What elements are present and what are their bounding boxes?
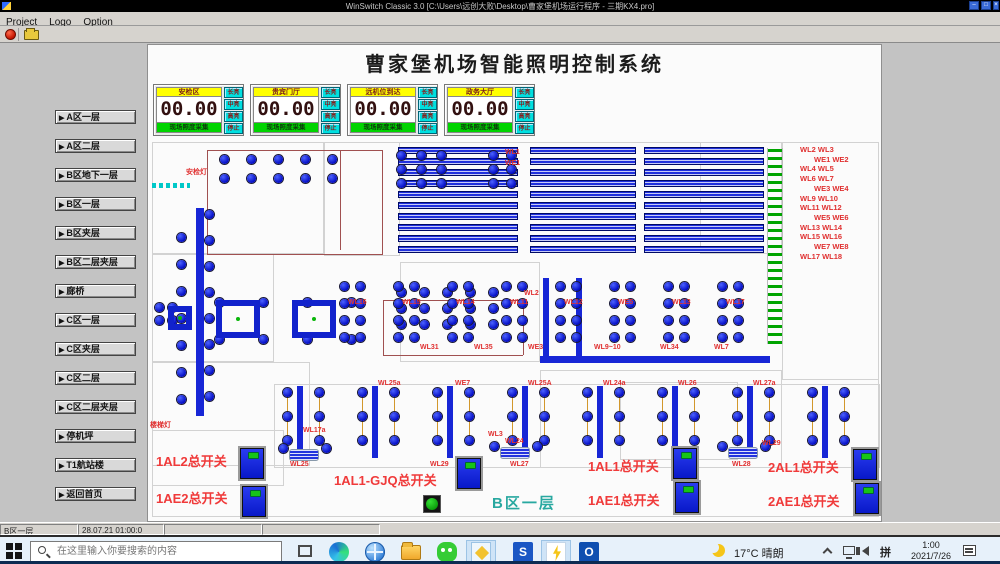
sidebar-button-3[interactable]: ▶B区一层 — [55, 197, 136, 211]
plan-wall — [274, 384, 880, 468]
clock-date: 2021/7/26 — [905, 551, 957, 562]
panel-mode-button-3[interactable]: 停止 — [418, 123, 437, 134]
light-dot[interactable] — [533, 442, 542, 451]
light-dot[interactable] — [358, 388, 367, 397]
light-dot[interactable] — [420, 304, 429, 313]
clock[interactable]: 1:00 2021/7/26 — [905, 540, 957, 562]
light-dot[interactable] — [394, 333, 403, 342]
light-dot[interactable] — [518, 333, 527, 342]
light-dot[interactable] — [177, 260, 186, 269]
arrow-icon: ▶ — [59, 318, 64, 325]
sidebar-button-6[interactable]: ▶廊桥 — [55, 284, 136, 298]
light-dot[interactable] — [489, 179, 498, 188]
light-bar[interactable] — [398, 213, 518, 220]
light-dot[interactable] — [390, 412, 399, 421]
light-dot[interactable] — [433, 388, 442, 397]
panel-mode-button-2[interactable]: 高亮 — [224, 111, 243, 122]
light-dot[interactable] — [664, 316, 673, 325]
light-dot[interactable] — [397, 151, 406, 160]
light-bar[interactable] — [530, 191, 636, 198]
plan-conduit-line — [523, 300, 524, 355]
light-bar[interactable] — [543, 278, 549, 360]
light-bar[interactable] — [372, 386, 378, 458]
sidebar-button-12[interactable]: ▶T1航站楼 — [55, 458, 136, 472]
light-bar[interactable] — [530, 246, 636, 253]
light-dot[interactable] — [658, 412, 667, 421]
light-bar[interactable] — [398, 169, 518, 176]
light-bar[interactable] — [540, 356, 770, 363]
light-dot[interactable] — [315, 412, 324, 421]
light-dot[interactable] — [680, 333, 689, 342]
light-dot[interactable] — [315, 436, 324, 445]
light-bar[interactable] — [530, 213, 636, 220]
light-dot[interactable] — [340, 316, 349, 325]
circuit-list: WL2 WL3WE1 WE2WL4 WL5WL6 WL7WE3 WE4WL9 W… — [800, 145, 849, 261]
light-dot[interactable] — [390, 388, 399, 397]
master-switch-button-2[interactable] — [457, 458, 481, 489]
light-dot[interactable] — [433, 412, 442, 421]
panel-mode-button-0[interactable]: 长亮 — [418, 87, 437, 98]
panel-mode-button-3[interactable]: 停止 — [515, 123, 534, 134]
light-dot[interactable] — [610, 333, 619, 342]
light-dot[interactable] — [177, 395, 186, 404]
circuit-label: WL16 — [348, 299, 367, 306]
light-dot[interactable] — [583, 436, 592, 445]
light-bar[interactable] — [644, 213, 764, 220]
light-dot[interactable] — [301, 174, 310, 183]
light-dot[interactable] — [765, 388, 774, 397]
light-bar[interactable] — [530, 169, 636, 176]
master-switch-button-1[interactable] — [242, 486, 266, 517]
light-dot[interactable] — [328, 155, 337, 164]
light-dot[interactable] — [340, 333, 349, 342]
light-dot[interactable] — [680, 316, 689, 325]
light-dot[interactable] — [518, 316, 527, 325]
circuit-label: WL14 — [456, 299, 475, 306]
light-dot[interactable] — [417, 179, 426, 188]
panel-mode-button-1[interactable]: 中亮 — [418, 99, 437, 110]
light-dot[interactable] — [465, 436, 474, 445]
circuit-label: WL26 — [678, 380, 697, 387]
close-button[interactable]: × — [993, 1, 999, 10]
circuit-list-line: WE7 WE8 — [814, 242, 849, 252]
light-dot[interactable] — [502, 316, 511, 325]
light-bar[interactable] — [530, 202, 636, 209]
light-dot[interactable] — [489, 288, 498, 297]
circuit-label: WL27 — [510, 461, 529, 468]
light-fixture[interactable] — [500, 447, 530, 459]
light-bar[interactable] — [398, 246, 518, 253]
light-dot[interactable] — [610, 282, 619, 291]
tray-chevron-up-icon[interactable] — [823, 548, 833, 558]
panel-mode-button-3[interactable]: 停止 — [224, 123, 243, 134]
light-dot[interactable] — [489, 304, 498, 313]
wechat-taskbar-button[interactable] — [432, 540, 462, 564]
panel-footer-label: 现场照度采集 — [156, 123, 222, 133]
light-dot[interactable] — [615, 388, 624, 397]
outlook-taskbar-button[interactable]: O — [574, 540, 604, 564]
panel-zone-title: 政务大厅 — [447, 87, 513, 97]
light-dot[interactable] — [437, 165, 446, 174]
light-dot[interactable] — [840, 436, 849, 445]
light-dot[interactable] — [205, 392, 214, 401]
light-dot[interactable] — [247, 174, 256, 183]
master-switch-button-3[interactable] — [673, 448, 697, 479]
ime-indicator[interactable]: 拼 — [880, 544, 891, 560]
key-app-taskbar-button[interactable] — [466, 540, 496, 564]
light-bar[interactable] — [644, 180, 764, 187]
light-dot[interactable] — [615, 436, 624, 445]
light-bar[interactable] — [398, 158, 518, 165]
circuit-list-line: WE5 WE6 — [814, 213, 849, 223]
area-label: B区一层 — [492, 492, 556, 513]
stop-tool-icon[interactable] — [5, 29, 16, 40]
light-dot[interactable] — [448, 316, 457, 325]
light-bar[interactable] — [597, 386, 603, 458]
menu-bar: ProjectLogoOption — [0, 12, 1000, 26]
circuit-list-line: WL13 WL14 — [800, 223, 849, 233]
room-light-block[interactable] — [168, 306, 192, 330]
taskbar-search[interactable] — [30, 541, 282, 562]
master-switch-label: 1AE1总开关 — [588, 490, 660, 509]
light-dot[interactable] — [448, 333, 457, 342]
circuit-label: WL24 — [505, 438, 524, 445]
light-bar[interactable] — [644, 246, 764, 253]
light-dot[interactable] — [390, 436, 399, 445]
light-dot[interactable] — [394, 282, 403, 291]
light-dot[interactable] — [556, 282, 565, 291]
light-bar[interactable] — [398, 202, 518, 209]
light-dot[interactable] — [410, 316, 419, 325]
sidebar-button-label: C区二层夹层 — [66, 402, 118, 412]
edge-taskbar-button[interactable] — [324, 540, 354, 564]
sidebar-button-label: C区夹层 — [66, 344, 100, 354]
arrow-icon: ▶ — [59, 173, 64, 180]
sidebar-button-10[interactable]: ▶C区二层夹层 — [55, 400, 136, 414]
light-dot[interactable] — [733, 412, 742, 421]
sidebar-button-label: 停机坪 — [66, 431, 93, 441]
light-dot[interactable] — [283, 388, 292, 397]
light-bar[interactable] — [398, 147, 518, 154]
light-dot[interactable] — [489, 320, 498, 329]
light-dot[interactable] — [155, 303, 164, 312]
status-cell-1: 28.07.21 01:00:0 — [78, 524, 164, 535]
light-dot[interactable] — [397, 165, 406, 174]
panel-mode-button-0[interactable]: 长亮 — [224, 87, 243, 98]
task-view-taskbar-button[interactable] — [290, 540, 320, 564]
file-explorer-taskbar-button[interactable] — [396, 540, 426, 564]
light-dot[interactable] — [556, 316, 565, 325]
light-dot[interactable] — [490, 442, 499, 451]
light-dot[interactable] — [205, 366, 214, 375]
light-dot[interactable] — [502, 333, 511, 342]
light-dot[interactable] — [315, 388, 324, 397]
light-dot[interactable] — [610, 316, 619, 325]
panel-body: 远机位到达00.00现场照度采集 — [350, 87, 416, 133]
light-dot[interactable] — [489, 165, 498, 174]
arrow-icon: ▶ — [59, 289, 64, 296]
circuit-label: WL28 — [732, 461, 751, 468]
light-bar[interactable] — [530, 158, 636, 165]
light-dot[interactable] — [733, 388, 742, 397]
light-dot[interactable] — [718, 442, 727, 451]
light-dot[interactable] — [680, 282, 689, 291]
light-bar[interactable] — [644, 191, 764, 198]
light-bar[interactable] — [398, 180, 518, 187]
light-dot[interactable] — [220, 155, 229, 164]
speaker-icon[interactable] — [862, 546, 869, 556]
light-dot[interactable] — [205, 314, 214, 323]
light-dot[interactable] — [572, 316, 581, 325]
status-cell-3 — [262, 524, 380, 535]
lightning-app-taskbar-button[interactable] — [541, 540, 571, 564]
light-bar[interactable] — [447, 386, 453, 458]
toolbar — [0, 26, 1000, 43]
light-dot[interactable] — [664, 282, 673, 291]
panel-mode-button-3[interactable]: 停止 — [321, 123, 340, 134]
light-bar[interactable] — [644, 235, 764, 242]
light-bar[interactable] — [530, 235, 636, 242]
master-switch-button-6[interactable] — [855, 483, 879, 514]
light-dot[interactable] — [556, 333, 565, 342]
light-dot[interactable] — [205, 236, 214, 245]
light-bar[interactable] — [530, 180, 636, 187]
search-input[interactable] — [55, 543, 275, 560]
light-dot[interactable] — [464, 333, 473, 342]
light-dot[interactable] — [155, 316, 164, 325]
browser-globe-taskbar-button[interactable] — [360, 540, 390, 564]
light-dot[interactable] — [465, 412, 474, 421]
room-light-block[interactable] — [216, 300, 260, 338]
sidebar-button-7[interactable]: ▶C区一层 — [55, 313, 136, 327]
light-dot[interactable] — [177, 233, 186, 242]
light-dot[interactable] — [502, 282, 511, 291]
light-bar[interactable] — [822, 386, 828, 458]
circuit-list-line: WL15 WL16 — [800, 232, 849, 242]
light-dot[interactable] — [658, 436, 667, 445]
master-switch-button-0[interactable] — [240, 448, 264, 479]
light-dot[interactable] — [508, 412, 517, 421]
light-bar[interactable] — [297, 386, 303, 458]
light-bar[interactable] — [644, 147, 764, 154]
green-indicator-button[interactable] — [423, 495, 441, 513]
key-app-icon — [471, 542, 491, 562]
light-dot[interactable] — [274, 155, 283, 164]
notification-center-icon[interactable] — [963, 545, 976, 556]
light-bar[interactable] — [644, 202, 764, 209]
light-dot[interactable] — [301, 155, 310, 164]
sidebar-button-11[interactable]: ▶停机坪 — [55, 429, 136, 443]
start-button[interactable] — [6, 543, 22, 559]
master-switch-button-4[interactable] — [675, 482, 699, 513]
outlook-icon: O — [579, 542, 599, 562]
light-dot[interactable] — [205, 340, 214, 349]
light-dot[interactable] — [394, 316, 403, 325]
moon-weather-icon — [712, 544, 725, 557]
light-dot[interactable] — [259, 335, 268, 344]
network-icon[interactable] — [843, 546, 855, 555]
light-dot[interactable] — [664, 333, 673, 342]
room-light-block[interactable] — [292, 300, 336, 338]
light-dot[interactable] — [718, 316, 727, 325]
light-dot[interactable] — [356, 282, 365, 291]
light-dot[interactable] — [808, 412, 817, 421]
open-folder-icon[interactable] — [24, 30, 39, 40]
plan-cyan-ticks — [152, 183, 190, 188]
light-dot[interactable] — [433, 436, 442, 445]
light-dot[interactable] — [259, 298, 268, 307]
sidebar-button-0[interactable]: ▶A区一层 — [55, 110, 136, 124]
task-view-icon — [298, 545, 312, 557]
panel-mode-button-1[interactable]: 中亮 — [321, 99, 340, 110]
light-dot[interactable] — [572, 282, 581, 291]
master-switch-button-5[interactable] — [853, 449, 877, 480]
light-dot[interactable] — [279, 444, 288, 453]
light-dot[interactable] — [437, 179, 446, 188]
panel-zone-title: 贵宾门厅 — [253, 87, 319, 97]
light-dot[interactable] — [464, 282, 473, 291]
panel-lux-value: 00.00 — [156, 97, 222, 123]
sidebar-button-4[interactable]: ▶B区夹层 — [55, 226, 136, 240]
circuit-label: WL3 — [488, 431, 503, 438]
circuit-label: WL34 — [660, 344, 679, 351]
light-dot[interactable] — [690, 412, 699, 421]
light-bar[interactable] — [644, 158, 764, 165]
circuit-label: WL7 — [714, 344, 729, 351]
light-dot[interactable] — [177, 341, 186, 350]
light-fixture[interactable] — [289, 449, 319, 461]
light-dot[interactable] — [247, 155, 256, 164]
light-dot[interactable] — [322, 444, 331, 453]
panel-mode-button-1[interactable]: 中亮 — [224, 99, 243, 110]
light-bar[interactable] — [644, 224, 764, 231]
light-bar[interactable] — [196, 208, 204, 416]
sidebar-button-label: B区二层夹层 — [66, 257, 118, 267]
light-dot[interactable] — [464, 316, 473, 325]
light-bar[interactable] — [530, 147, 636, 154]
light-dot[interactable] — [690, 436, 699, 445]
light-bar[interactable] — [398, 235, 518, 242]
light-dot[interactable] — [356, 333, 365, 342]
light-dot[interactable] — [274, 174, 283, 183]
minimize-button[interactable]: – — [969, 1, 979, 10]
light-dot[interactable] — [410, 333, 419, 342]
light-dot[interactable] — [626, 282, 635, 291]
weather-status[interactable]: 17°C 晴朗 — [734, 545, 784, 561]
light-dot[interactable] — [507, 179, 516, 188]
maximize-button[interactable]: □ — [981, 1, 991, 10]
light-dot[interactable] — [417, 151, 426, 160]
light-dot[interactable] — [448, 282, 457, 291]
light-dot[interactable] — [358, 412, 367, 421]
light-bar[interactable] — [398, 224, 518, 231]
sidebar-button-1[interactable]: ▶A区二层 — [55, 139, 136, 153]
light-bar[interactable] — [530, 224, 636, 231]
panel-mode-button-0[interactable]: 长亮 — [321, 87, 340, 98]
sidebar-button-2[interactable]: ▶B区地下一层 — [55, 168, 136, 182]
light-dot[interactable] — [690, 388, 699, 397]
panel-mode-button-1[interactable]: 中亮 — [515, 99, 534, 110]
sidebar-button-13[interactable]: ▶返回首页 — [55, 487, 136, 501]
light-dot[interactable] — [808, 436, 817, 445]
light-dot[interactable] — [734, 282, 743, 291]
panel-mode-button-2[interactable]: 高亮 — [418, 111, 437, 122]
light-dot[interactable] — [733, 436, 742, 445]
sidebar-button-8[interactable]: ▶C区夹层 — [55, 342, 136, 356]
light-bar[interactable] — [398, 191, 518, 198]
arrow-icon: ▶ — [59, 202, 64, 209]
light-dot[interactable] — [220, 174, 229, 183]
light-dot[interactable] — [177, 287, 186, 296]
light-dot[interactable] — [177, 368, 186, 377]
light-dot[interactable] — [410, 282, 419, 291]
circuit-label: WL15 — [402, 299, 421, 306]
light-dot[interactable] — [734, 316, 743, 325]
light-dot[interactable] — [417, 165, 426, 174]
light-dot[interactable] — [205, 262, 214, 271]
light-dot[interactable] — [205, 288, 214, 297]
light-dot[interactable] — [583, 412, 592, 421]
circuit-label: 安检灯 — [186, 167, 207, 177]
light-dot[interactable] — [540, 412, 549, 421]
light-dot[interactable] — [765, 412, 774, 421]
light-dot[interactable] — [718, 282, 727, 291]
light-dot[interactable] — [840, 412, 849, 421]
light-dot[interactable] — [808, 388, 817, 397]
light-dot[interactable] — [283, 412, 292, 421]
light-dot[interactable] — [508, 388, 517, 397]
panel-mode-button-0[interactable]: 长亮 — [515, 87, 534, 98]
light-dot[interactable] — [420, 288, 429, 297]
sidebar-button-label: 返回首页 — [66, 489, 102, 499]
light-dot[interactable] — [658, 388, 667, 397]
light-dot[interactable] — [718, 333, 727, 342]
light-dot[interactable] — [840, 388, 849, 397]
light-fixture[interactable] — [728, 447, 758, 459]
light-dot[interactable] — [328, 174, 337, 183]
light-dot[interactable] — [397, 179, 406, 188]
light-dot[interactable] — [626, 316, 635, 325]
panel-zone-title: 远机位到达 — [350, 87, 416, 97]
light-dot[interactable] — [734, 333, 743, 342]
light-dot[interactable] — [437, 151, 446, 160]
circuit-label: WL12 — [564, 299, 583, 306]
sidebar-button-5[interactable]: ▶B区二层夹层 — [55, 255, 136, 269]
panel-mode-button-2[interactable]: 高亮 — [321, 111, 340, 122]
sidebar-button-9[interactable]: ▶C区二层 — [55, 371, 136, 385]
light-dot[interactable] — [340, 282, 349, 291]
blue-app-taskbar-button[interactable]: S — [508, 540, 538, 564]
circuit-label: WE5 — [618, 299, 633, 306]
light-dot[interactable] — [540, 388, 549, 397]
light-dot[interactable] — [489, 151, 498, 160]
illuminance-panel-2: 远机位到达00.00现场照度采集长亮中亮高亮停止 — [347, 84, 438, 136]
sidebar-button-label: C区二层 — [66, 373, 100, 383]
light-dot[interactable] — [420, 320, 429, 329]
light-dot[interactable] — [465, 388, 474, 397]
light-bar[interactable] — [644, 169, 764, 176]
light-dot[interactable] — [205, 210, 214, 219]
light-dot[interactable] — [615, 412, 624, 421]
light-dot[interactable] — [572, 333, 581, 342]
clock-time: 1:00 — [905, 540, 957, 551]
panel-mode-button-2[interactable]: 高亮 — [515, 111, 534, 122]
light-dot[interactable] — [626, 333, 635, 342]
light-dot[interactable] — [583, 388, 592, 397]
light-dot[interactable] — [358, 436, 367, 445]
plan-conduit-line — [340, 150, 341, 250]
light-dot[interactable] — [356, 316, 365, 325]
